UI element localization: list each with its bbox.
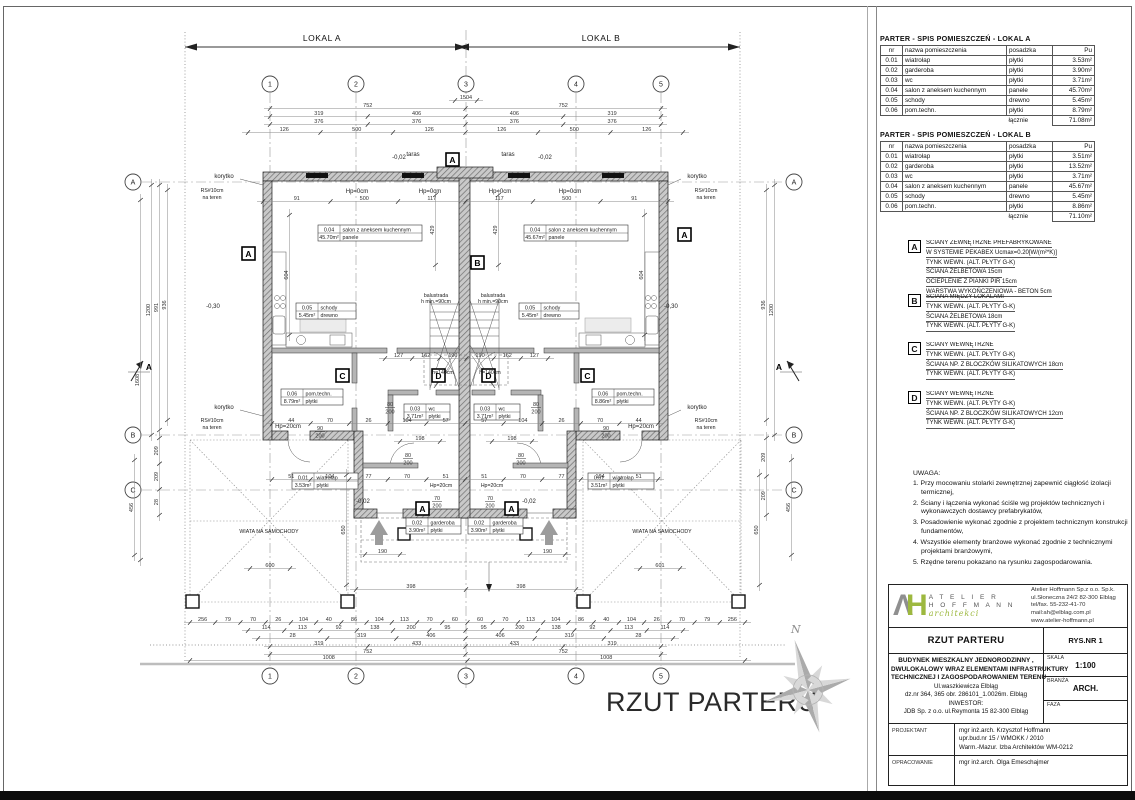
svg-text:77: 77: [558, 474, 564, 480]
dim-chain: 936: [162, 184, 170, 426]
svg-text:190: 190: [475, 353, 484, 359]
svg-text:406: 406: [510, 111, 519, 117]
svg-text:319: 319: [314, 111, 323, 117]
svg-text:płytki: płytki: [499, 414, 511, 420]
table-cell: płytki: [1007, 56, 1053, 66]
svg-text:Hp=20cm: Hp=20cm: [628, 424, 654, 430]
wall-legend-b: B ŚCIANA MIĘDZY LOKALAMITYNK WEWN. (ALT.…: [908, 294, 1133, 333]
list-item: mail:ah@elblag.com.pl: [1031, 610, 1123, 618]
dim-chain: 991: [154, 179, 162, 436]
list-item: Ul.waszkiewicza Elbląg: [891, 683, 1041, 691]
wall-mark-a-bottom-left: A: [416, 502, 429, 515]
room-table-lokal-b: nrnazwa pomieszczeniaposadzkaPu0.01wiatr…: [880, 141, 1095, 222]
svg-text:500: 500: [562, 196, 571, 202]
grid-bubble-b-left: B: [125, 427, 141, 443]
dim-chain: 190: [359, 549, 406, 557]
svg-text:406: 406: [495, 633, 504, 639]
svg-text:70: 70: [327, 418, 333, 424]
table-cell: 3.90m²: [1053, 66, 1095, 76]
grid-bubble-a-right: A: [786, 174, 802, 190]
svg-text:604: 604: [639, 270, 645, 279]
svg-text:127: 127: [530, 353, 539, 359]
svg-text:200: 200: [432, 504, 441, 510]
wall-mark-a-bottom-right: A: [505, 502, 518, 515]
svg-text:Hp=20cm: Hp=20cm: [430, 483, 452, 489]
table-cell: 45.67m²: [1053, 182, 1095, 192]
drawing-name: RZUT PARTERU: [889, 628, 1044, 653]
svg-text:A: A: [245, 249, 251, 259]
svg-text:138: 138: [552, 625, 561, 631]
designer-info: mgr inż.arch. Krzysztof Hoffmannupr.bud.…: [955, 724, 1127, 755]
table-cell: nr: [881, 142, 903, 152]
wall-legend-c-lines: ŚCIANY WEWNĘTRZNETYNK WEWN. (ALT. PŁYTY …: [926, 342, 1133, 381]
table-cell: 8.79m²: [1053, 106, 1095, 116]
svg-text:319: 319: [314, 641, 323, 647]
svg-text:209: 209: [761, 453, 767, 462]
svg-text:na teren: na teren: [202, 195, 221, 201]
svg-text:panele: panele: [549, 235, 565, 241]
svg-text:2: 2: [354, 82, 358, 89]
svg-text:70: 70: [427, 617, 433, 623]
svg-text:70: 70: [502, 617, 508, 623]
section-marker-right: A: [776, 361, 802, 381]
branch-cell: BRANŻA ARCH.: [1044, 676, 1127, 699]
svg-text:752: 752: [559, 103, 568, 109]
room-label-garderoba-a: 0.02garderoba3.90m²płytki: [406, 518, 461, 534]
table-cell: panele: [1007, 182, 1053, 192]
grid-bubble-3-top: 3: [458, 76, 474, 92]
drawing-number: RYS.NR 1: [1044, 628, 1127, 653]
room-label-pom-a: 0.06pom.techn.8.79m²płytki: [281, 389, 343, 405]
table-cell: nazwa pomieszczenia: [903, 142, 1007, 152]
svg-text:200: 200: [485, 504, 494, 510]
company-address: Atelier Hoffmann Sp.z o.o. Sp.k.ul.Słone…: [1031, 587, 1123, 625]
door-label: 90200: [601, 426, 611, 440]
list-item: ŚCIANY WEWNĘTRZNE: [926, 342, 994, 350]
svg-text:104: 104: [375, 617, 384, 623]
svg-text:0.03: 0.03: [480, 407, 490, 413]
svg-text:3: 3: [464, 82, 468, 89]
svg-text:korytko: korytko: [214, 405, 234, 411]
table-cell: płytki: [1007, 106, 1053, 116]
svg-text:A: A: [419, 504, 425, 514]
dim-chain: 319433433319: [264, 641, 667, 649]
svg-text:0.04: 0.04: [324, 228, 334, 234]
svg-text:104: 104: [627, 617, 636, 623]
svg-text:95: 95: [481, 625, 487, 631]
svg-text:h=140cm: h=140cm: [432, 370, 454, 376]
exterior-walls: [263, 167, 668, 518]
svg-text:319: 319: [565, 633, 574, 639]
svg-text:5: 5: [659, 674, 663, 681]
door-label: 70200: [485, 496, 495, 510]
list-item: ŚCIANA ŻELBETOWA 18cm: [926, 314, 1002, 322]
wall-legend-b-lines: ŚCIANA MIĘDZY LOKALAMITYNK WEWN. (ALT. P…: [926, 294, 1133, 333]
svg-text:A: A: [131, 180, 136, 187]
phase-cell: FAZA: [1044, 700, 1127, 723]
svg-text:1608: 1608: [135, 374, 141, 386]
svg-text:28: 28: [154, 499, 160, 505]
svg-text:80: 80: [405, 453, 411, 459]
dim-chain: 319406406319: [264, 111, 667, 119]
table-cell: 13.52m²: [1053, 162, 1095, 172]
logo-script: architekci: [929, 609, 1015, 618]
svg-text:taras: taras: [501, 152, 514, 158]
door-label: 80200: [403, 453, 413, 467]
wall-mark-a-right: A: [678, 228, 691, 241]
dim-chain: 601: [634, 563, 686, 571]
svg-text:na teren: na teren: [696, 195, 715, 201]
table-cell: 71.10m²: [1053, 212, 1095, 222]
designer-row: PROJEKTANT mgr inż.arch. Krzysztof Hoffm…: [889, 723, 1127, 755]
svg-text:80: 80: [518, 453, 524, 459]
table-cell: płytki: [1007, 66, 1053, 76]
room-label-salon-a: 0.04salon z aneksem kuchennym45.70m²pane…: [318, 225, 422, 241]
svg-text:B: B: [474, 258, 480, 268]
wall-mark-a-left: A: [242, 247, 255, 260]
table-cell: 0.06: [881, 202, 903, 212]
svg-text:86: 86: [351, 617, 357, 623]
list-item: ŚCIANA MIĘDZY LOKALAMI: [926, 294, 1004, 302]
svg-text:319: 319: [357, 633, 366, 639]
svg-text:A: A: [449, 155, 455, 165]
table-cell: garderoba: [903, 66, 1007, 76]
svg-text:80: 80: [387, 402, 393, 408]
svg-text:0.06: 0.06: [598, 392, 608, 398]
wall-legend-d-mark: D: [908, 391, 921, 404]
svg-text:406: 406: [412, 111, 421, 117]
table-cell: posadzka: [1007, 46, 1053, 56]
table-cell: 3.71m²: [1053, 76, 1095, 86]
svg-text:Hp=20cm: Hp=20cm: [481, 483, 503, 489]
list-item: JDB Sp. z o.o. ul.Reymonta 15 82-300 Elb…: [891, 708, 1041, 716]
table-cell: płytki: [1007, 152, 1053, 162]
svg-text:114: 114: [262, 625, 271, 631]
wall-legend-d-lines: ŚCIANY WEWNĘTRZNETYNK WEWN. (ALT. PŁYTY …: [926, 391, 1133, 430]
svg-text:200: 200: [403, 461, 412, 467]
svg-text:90: 90: [317, 426, 323, 432]
table-cell: 45.70m²: [1053, 86, 1095, 96]
compass-rose-icon: N: [752, 623, 862, 744]
svg-text:91: 91: [631, 196, 637, 202]
svg-text:86: 86: [578, 617, 584, 623]
list-item: Warm.-Mazur. Izba Architektów WM-0212: [959, 744, 1123, 752]
table-cell: 0.03: [881, 76, 903, 86]
svg-text:91: 91: [294, 196, 300, 202]
svg-text:schody: schody: [544, 306, 561, 312]
svg-text:319: 319: [608, 641, 617, 647]
svg-text:398: 398: [516, 584, 525, 590]
svg-text:A: A: [776, 362, 782, 372]
svg-text:C: C: [584, 371, 590, 381]
svg-text:28: 28: [635, 633, 641, 639]
svg-text:wc: wc: [499, 407, 506, 413]
svg-text:200: 200: [601, 434, 610, 440]
dim-chain: 198: [394, 436, 446, 444]
table-cell: pom.techn.: [903, 202, 1007, 212]
svg-text:376: 376: [412, 119, 421, 125]
svg-text:57: 57: [443, 418, 449, 424]
kitchen-left: [272, 252, 352, 347]
svg-text:162: 162: [503, 353, 512, 359]
svg-text:3.90m²: 3.90m²: [471, 528, 488, 534]
room-label-schody-a: 0.05schody5.45m²drewno: [296, 303, 356, 319]
svg-text:3.53m²: 3.53m²: [295, 483, 312, 489]
svg-text:398: 398: [406, 584, 415, 590]
svg-text:garderoba: garderoba: [431, 521, 455, 527]
grid-bubble-c-right: C: [786, 482, 802, 498]
svg-text:51: 51: [481, 474, 487, 480]
svg-text:376: 376: [510, 119, 519, 125]
list-item: TYNK WEWN. (ALT. PŁYTY G-K): [926, 304, 1015, 312]
svg-text:126: 126: [280, 127, 289, 133]
svg-text:korytko: korytko: [687, 174, 707, 180]
table-title-lokal-b: PARTER - SPIS POMIESZCZEŃ - LOKAL B: [880, 130, 1096, 139]
table-cell: schody: [903, 192, 1007, 202]
table-cell: 5.45m²: [1053, 96, 1095, 106]
svg-text:C: C: [791, 488, 796, 495]
svg-text:0.02: 0.02: [474, 521, 484, 527]
list-item: TYNK WEWN. (ALT. PŁYTY G-K): [926, 260, 1015, 268]
svg-text:A: A: [146, 362, 152, 372]
svg-text:190: 190: [378, 549, 387, 555]
svg-text:104: 104: [325, 474, 334, 480]
panel-divider-line-1: [867, 6, 868, 791]
svg-text:433: 433: [412, 641, 421, 647]
svg-text:0.05: 0.05: [302, 306, 312, 312]
wall-mark-c-left: C: [336, 369, 349, 382]
list-item: 1. Przy mocowaniu stolarki zewnętrznej z…: [913, 480, 1135, 498]
kitchen-right: [579, 252, 659, 347]
door-label: 80200: [516, 453, 526, 467]
svg-text:113: 113: [298, 625, 307, 631]
svg-text:752: 752: [363, 103, 372, 109]
svg-text:376: 376: [314, 119, 323, 125]
list-item: 4. Wszystkie elementy branżowe wykonać z…: [913, 539, 1135, 557]
list-item: TECHNICZNEJ I ZAGOSPODAROWANIEM TERENU: [891, 674, 1041, 683]
svg-text:na teren: na teren: [696, 425, 715, 431]
svg-text:4: 4: [574, 82, 578, 89]
list-item: TYNK WEWN. (ALT. PŁYTY G-K): [926, 420, 1015, 428]
svg-text:200: 200: [516, 461, 525, 467]
table-cell: wiatrołap: [903, 56, 1007, 66]
svg-text:0.02: 0.02: [412, 521, 422, 527]
notes-block: UWAGA: 1. Przy mocowaniu stolarki zewnęt…: [913, 470, 1135, 569]
drafter-label: OPRACOWANIE: [889, 756, 955, 785]
table-cell: garderoba: [903, 162, 1007, 172]
svg-text:0.05: 0.05: [525, 306, 535, 312]
table-cell: schody: [903, 96, 1007, 106]
entry-path-arrow: [486, 584, 492, 592]
svg-text:209: 209: [761, 491, 767, 500]
svg-text:126: 126: [497, 127, 506, 133]
svg-text:79: 79: [704, 617, 710, 623]
svg-text:RS#10cm: RS#10cm: [201, 188, 224, 194]
grid-bubble-1-top: 1: [262, 76, 278, 92]
svg-text:1008: 1008: [323, 655, 335, 661]
table-cell: 0.01: [881, 56, 903, 66]
svg-text:650: 650: [754, 525, 760, 534]
svg-text:C: C: [130, 488, 135, 495]
table-cell: salon z aneksem kuchennym: [903, 182, 1007, 192]
svg-text:198: 198: [415, 436, 424, 442]
logo-letter-h: H: [906, 589, 921, 622]
svg-text:8.79m²: 8.79m²: [284, 399, 301, 405]
svg-text:60: 60: [452, 617, 458, 623]
dim-chain: 752752: [264, 103, 667, 111]
project-meta: SKALA 1:100 BRANŻA ARCH. FAZA: [1044, 654, 1127, 723]
svg-text:3: 3: [464, 674, 468, 681]
dim-chain: 456: [129, 454, 137, 561]
svg-text:70: 70: [487, 496, 493, 502]
svg-text:pom.techn.: pom.techn.: [306, 392, 332, 398]
list-item: ŚCIANA ŻELBETOWA 15cm: [926, 269, 1002, 277]
svg-text:-0,02: -0,02: [392, 155, 406, 161]
svg-text:126: 126: [425, 127, 434, 133]
svg-text:1: 1: [268, 82, 272, 89]
door-label: 80200: [385, 402, 395, 416]
sheet-border-top: [3, 6, 1131, 7]
dim-chain: 2831940640631928: [252, 633, 679, 641]
list-item: 5. Rzędne terenu pokazano na rysunku zag…: [913, 559, 1135, 568]
svg-text:5.45m²: 5.45m²: [299, 313, 316, 319]
svg-text:936: 936: [761, 300, 767, 309]
table-cell: 0.02: [881, 66, 903, 76]
table-cell: płytki: [1007, 172, 1053, 182]
svg-text:h min.=90cm: h min.=90cm: [421, 299, 451, 305]
svg-text:-0,02: -0,02: [538, 155, 552, 161]
svg-text:1504: 1504: [460, 95, 472, 101]
svg-text:1008: 1008: [600, 655, 612, 661]
svg-text:650: 650: [341, 525, 347, 534]
svg-text:3.51m²: 3.51m²: [591, 483, 608, 489]
svg-text:korytko: korytko: [214, 174, 234, 180]
svg-text:Hp=0cm: Hp=0cm: [419, 189, 442, 195]
logo-letter-a: Λ: [893, 589, 906, 622]
door-label: 90200: [315, 426, 325, 440]
section-mark-a-top: A: [446, 153, 459, 166]
table-cell: posadzka: [1007, 142, 1053, 152]
title-block: ΛH A T E L I E R H O F F M A N N archite…: [888, 584, 1128, 786]
table-cell: 0.02: [881, 162, 903, 172]
svg-text:garderoba: garderoba: [493, 521, 517, 527]
svg-text:korytko: korytko: [687, 405, 707, 411]
wall-legend-a-mark: A: [908, 240, 921, 253]
svg-text:wiatrołap: wiatrołap: [613, 476, 634, 482]
table-cell: Pu: [1053, 46, 1095, 56]
svg-text:126: 126: [642, 127, 651, 133]
svg-text:0.06: 0.06: [287, 392, 297, 398]
right-panel: PARTER - SPIS POMIESZCZEŃ - LOKAL A nrna…: [878, 0, 1135, 791]
table-cell: płytki: [1007, 76, 1053, 86]
list-item: TYNK WEWN. (ALT. PŁYTY G-K): [926, 371, 1015, 379]
svg-text:płytki: płytki: [429, 414, 441, 420]
svg-text:104: 104: [518, 418, 527, 424]
svg-text:70: 70: [597, 418, 603, 424]
svg-text:117: 117: [427, 196, 436, 202]
grid-bubble-1-bottom: 1: [262, 668, 278, 684]
grid-bubble-3-bottom: 3: [458, 668, 474, 684]
scale-cell: SKALA 1:100: [1044, 654, 1127, 676]
table-cell: nazwa pomieszczenia: [903, 46, 1007, 56]
table-cell: 0.03: [881, 172, 903, 182]
svg-text:płytki: płytki: [493, 528, 505, 534]
dim-chain: 456: [786, 454, 794, 561]
svg-text:95: 95: [444, 625, 450, 631]
carport-left-label: WIATA NA SAMOCHODY: [239, 529, 299, 535]
svg-text:127: 127: [394, 353, 403, 359]
list-item: OCIEPLENIE Z PIANKI PIR 15cm: [926, 279, 1017, 287]
lokal-b-label: LOKAL B: [582, 33, 621, 43]
svg-text:104: 104: [299, 617, 308, 623]
table-cell: 8.86m²: [1053, 202, 1095, 212]
svg-text:4: 4: [574, 674, 578, 681]
svg-text:114: 114: [660, 625, 669, 631]
svg-text:wc: wc: [429, 407, 436, 413]
room-label-salon-b: 0.04salon z aneksem kuchennym45.67m²pane…: [524, 225, 628, 241]
svg-text:57: 57: [481, 418, 487, 424]
svg-text:752: 752: [363, 649, 372, 655]
dim-chain: 1200: [769, 179, 777, 441]
svg-text:RS#10cm: RS#10cm: [695, 418, 718, 424]
list-item: ŚCIANY WEWNĘTRZNE: [926, 391, 994, 399]
table-cell: 0.06: [881, 106, 903, 116]
list-item: upr.bud.nr 15 / WMOKK / 2010: [959, 735, 1123, 743]
svg-text:A: A: [681, 230, 687, 240]
wall-legend-a: A ŚCIANY ZEWNĘTRZNE PREFABRYKOWANEW SYST…: [908, 240, 1133, 299]
logo-wordmark: A T E L I E R H O F F M A N N architekci: [929, 594, 1015, 618]
wall-mark-b-center: B: [471, 256, 484, 269]
wall-legend-a-lines: ŚCIANY ZEWNĘTRZNE PREFABRYKOWANEW SYSTEM…: [926, 240, 1133, 299]
svg-text:-0,30: -0,30: [206, 304, 220, 310]
grid-bubble-c-left: C: [125, 482, 141, 498]
svg-text:429: 429: [430, 225, 436, 234]
svg-text:60: 60: [477, 617, 483, 623]
svg-text:198: 198: [507, 436, 516, 442]
list-item: ŚCIANA NP. Z BLOCZKÓW SILIKATOWYCH 12cm: [926, 411, 1063, 419]
table-cell: wc: [903, 76, 1007, 86]
svg-text:płytki: płytki: [431, 528, 443, 534]
wall-legend-c: C ŚCIANY WEWNĘTRZNETYNK WEWN. (ALT. PŁYT…: [908, 342, 1133, 381]
svg-text:5.45m²: 5.45m²: [522, 313, 539, 319]
dim-chain: 376376376376: [264, 119, 667, 127]
svg-text:190: 190: [448, 353, 457, 359]
svg-text:Hp=0cm: Hp=0cm: [559, 189, 582, 195]
svg-text:256: 256: [728, 617, 737, 623]
list-item: ŚCIANY ZEWNĘTRZNE PREFABRYKOWANE: [926, 240, 1052, 248]
svg-text:taras: taras: [406, 152, 419, 158]
svg-text:panele: panele: [343, 235, 359, 241]
carport-right-label: WIATA NA SAMOCHODY: [632, 529, 692, 535]
dim-chain: 1504: [449, 95, 483, 103]
table-cell: wiatrołap: [903, 152, 1007, 162]
table-cell: 3.53m²: [1053, 56, 1095, 66]
list-item: BUDYNEK MIESZKALNY JEDNORODZINNY ,: [891, 657, 1041, 666]
list-item: TYNK WEWN. (ALT. PŁYTY G-K): [926, 323, 1015, 331]
svg-text:0.04: 0.04: [530, 228, 540, 234]
svg-text:80: 80: [533, 402, 539, 408]
svg-text:45.70m²: 45.70m²: [319, 235, 339, 241]
table-title-lokal-a: PARTER - SPIS POMIESZCZEŃ - LOKAL A: [880, 34, 1096, 43]
svg-text:70: 70: [434, 496, 440, 502]
svg-text:200: 200: [515, 625, 524, 631]
dim-chain: 650: [754, 469, 762, 591]
list-item: 2. Ściany i łączenia wykonać ściśle wg p…: [913, 500, 1135, 518]
list-item: dz.nr 364, 365 obr. 286101_1.0026m. Elbl…: [891, 691, 1041, 699]
svg-text:138: 138: [370, 625, 379, 631]
dim-chain: 1200: [146, 179, 154, 441]
svg-text:2: 2: [354, 674, 358, 681]
